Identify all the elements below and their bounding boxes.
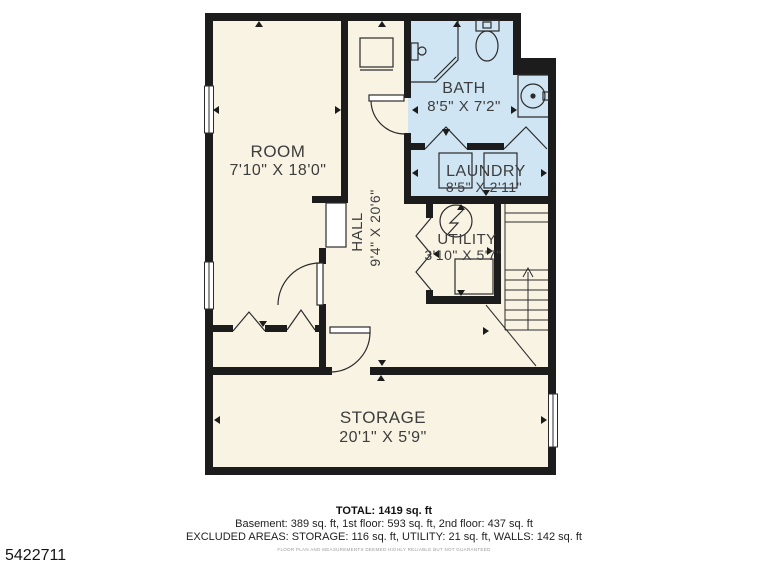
window-room-upper <box>205 86 214 133</box>
hall-label: HALL <box>349 212 366 252</box>
wall-room-hall-lower <box>319 304 326 368</box>
wall-left <box>205 13 213 475</box>
wall-laundry-bottom <box>404 196 556 204</box>
room-label: ROOM <box>251 142 306 161</box>
hall-dims: 9'4" X 20'6" <box>367 189 383 266</box>
storage-dims: 20'1" X 5'9" <box>339 429 427 446</box>
wall-bath-right-upper <box>513 13 521 62</box>
wall-utility-left-top <box>426 204 433 218</box>
floor-areas-text: Basement: 389 sq. ft, 1st floor: 593 sq.… <box>0 518 768 530</box>
wall-closet-seg2 <box>265 325 287 332</box>
floor-plan-drawing: ROOM 7'10" X 18'0" HALL 9'4" X 20'6" BAT… <box>0 0 768 576</box>
wall-room-hall-jog <box>312 196 348 203</box>
wall-top <box>205 13 521 21</box>
area-summary: TOTAL: 1419 sq. ft Basement: 389 sq. ft,… <box>0 505 768 552</box>
wall-storage-right <box>370 367 556 375</box>
bath-dims: 8'5" X 7'2" <box>427 98 501 115</box>
utility-label: UTILITY <box>437 231 496 248</box>
window-room-lower <box>205 262 214 309</box>
door-cased-opening-slab <box>326 203 346 247</box>
room-dims: 7'10" X 18'0" <box>230 162 327 179</box>
utility-dims: 3'10" X 5'7" <box>424 247 501 263</box>
wall-closet-seg1 <box>208 325 233 332</box>
laundry-dims: 8'5" X 2'11" <box>446 179 522 195</box>
storage-label: STORAGE <box>340 408 426 427</box>
wall-closet-seg3 <box>315 325 326 332</box>
disclaimer-text: FLOOR PLAN AND MEASUREMENTS DEEMED HIGHL… <box>0 547 768 552</box>
listing-id: 5422711 <box>5 547 66 565</box>
total-area-text: TOTAL: 1419 sq. ft <box>0 505 768 517</box>
wall-utility-bottom <box>426 296 501 304</box>
wall-laundry-top-seg1 <box>411 143 425 150</box>
floor-plan-page: ROOM 7'10" X 18'0" HALL 9'4" X 20'6" BAT… <box>0 0 768 576</box>
wall-storage-left <box>205 367 332 375</box>
wall-bottom <box>205 467 556 475</box>
laundry-label: LAUNDRY <box>446 163 526 180</box>
wall-laundry-top-seg2 <box>467 143 504 150</box>
bath-label: BATH <box>442 80 485 97</box>
wall-room-hall-upper <box>341 13 348 203</box>
wall-room-hall-mid <box>319 248 326 264</box>
wall-bath-hall-lower <box>404 133 411 203</box>
window-storage <box>549 394 558 447</box>
excluded-areas-text: EXCLUDED AREAS: STORAGE: 116 sq. ft, UTI… <box>0 531 768 543</box>
wall-bath-hall-upper <box>404 13 411 98</box>
